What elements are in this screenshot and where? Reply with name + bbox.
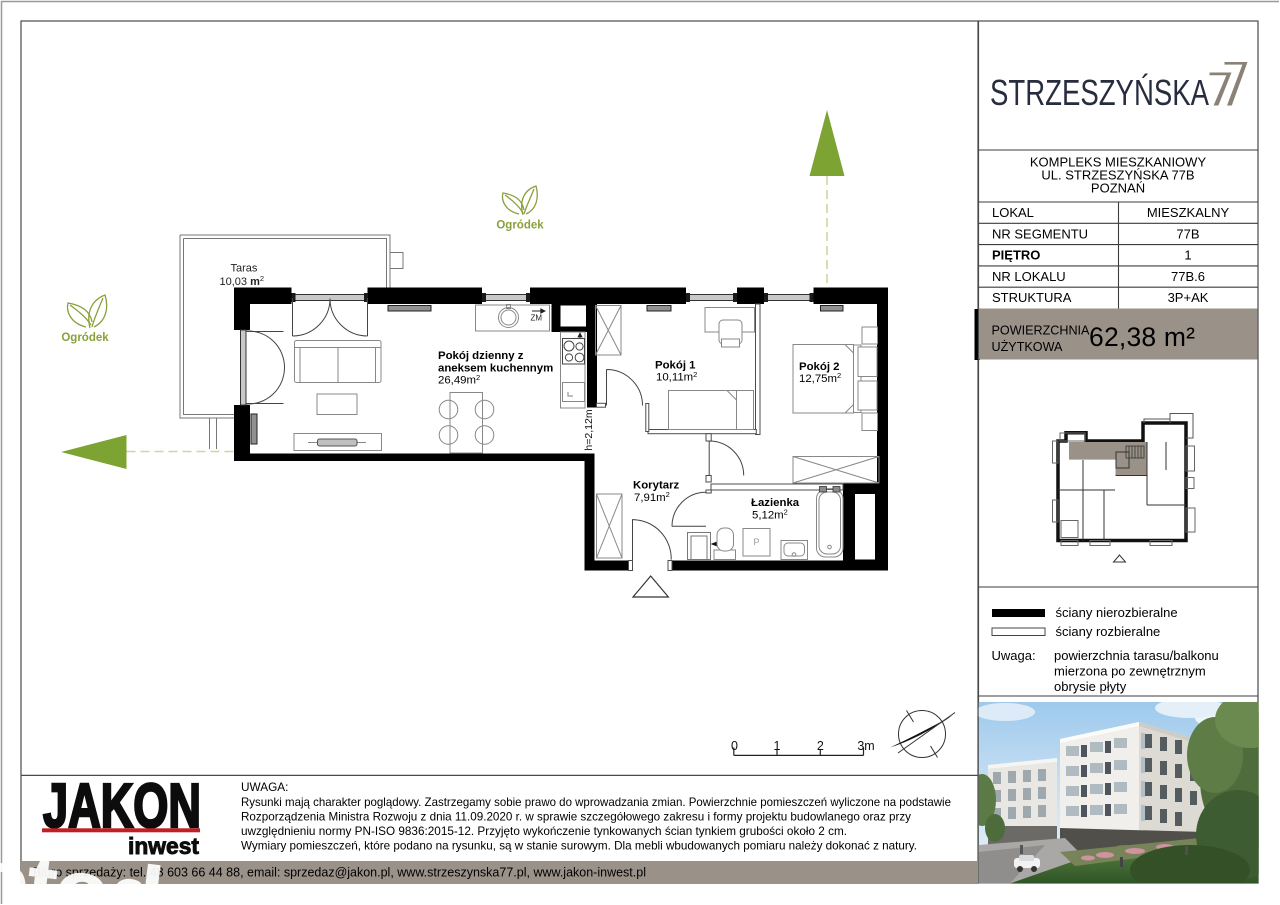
svg-text:P: P — [753, 537, 759, 547]
svg-text:3P+AK: 3P+AK — [1168, 290, 1209, 305]
svg-text:Wymiary pomieszczeń, które pod: Wymiary pomieszczeń, które podano na rys… — [241, 839, 917, 853]
svg-text:0: 0 — [731, 739, 738, 753]
svg-text:PIĘTRO: PIĘTRO — [992, 248, 1040, 263]
svg-text:powierzchnia tarasu/balkonu: powierzchnia tarasu/balkonu — [1054, 648, 1219, 663]
svg-text:Rysunki mają charakter poglądo: Rysunki mają charakter poglądowy. Zastrz… — [241, 795, 951, 809]
svg-text:STRUKTURA: STRUKTURA — [992, 290, 1072, 305]
svg-text:2: 2 — [817, 739, 824, 753]
svg-text:ściany rozbieralne: ściany rozbieralne — [1056, 624, 1161, 639]
svg-text:ZM: ZM — [531, 314, 543, 323]
svg-text:77B.6: 77B.6 — [1171, 269, 1205, 284]
svg-text:1: 1 — [1184, 248, 1191, 263]
svg-text:ściany nierozbieralne: ściany nierozbieralne — [1056, 605, 1178, 620]
svg-text:26,49m2: 26,49m2 — [438, 373, 480, 387]
svg-text:1: 1 — [774, 739, 781, 753]
svg-text:aneksem kuchennym: aneksem kuchennym — [438, 362, 553, 374]
svg-text:UŻYTKOWA: UŻYTKOWA — [992, 340, 1063, 354]
svg-text:NR LOKALU: NR LOKALU — [992, 269, 1066, 284]
svg-text:Ogródek: Ogródek — [496, 220, 544, 232]
svg-text:77B: 77B — [1176, 226, 1199, 241]
svg-text:12,75m2: 12,75m2 — [799, 371, 841, 385]
svg-text:7,91m2: 7,91m2 — [634, 490, 670, 504]
svg-text:3m: 3m — [857, 739, 874, 753]
svg-text:STRZESZYŃSKA: STRZESZYŃSKA — [990, 72, 1209, 113]
svg-text:Uwaga:: Uwaga: — [992, 648, 1036, 663]
svg-text:uwzględnieniu normy PN-ISO 983: uwzględnieniu normy PN-ISO 9836:2015-12.… — [241, 824, 847, 838]
svg-text:h=2,12m: h=2,12m — [583, 409, 595, 450]
svg-text:POWIERZCHNIA: POWIERZCHNIA — [992, 324, 1091, 338]
svg-text:10,11m2: 10,11m2 — [656, 370, 697, 384]
svg-text:Rozporządzenia Ministra Rozwoj: Rozporządzenia Ministra Rozwoju z dnia 1… — [241, 810, 911, 824]
svg-text:mierzona po zewnętrznym: mierzona po zewnętrznym — [1054, 664, 1206, 679]
svg-text:5,12m2: 5,12m2 — [752, 508, 788, 522]
svg-text:Ogródek: Ogródek — [61, 332, 109, 344]
svg-text:POZNAŃ: POZNAŃ — [1091, 181, 1145, 196]
svg-text:62,38 m²: 62,38 m² — [1089, 322, 1195, 352]
svg-text:Pokój 1: Pokój 1 — [655, 359, 696, 371]
svg-text:Pokój 2: Pokój 2 — [799, 361, 840, 373]
svg-text:MIESZKALNY: MIESZKALNY — [1147, 205, 1230, 220]
svg-text:UWAGA:: UWAGA: — [241, 780, 288, 794]
svg-text:NR SEGMENTU: NR SEGMENTU — [992, 226, 1088, 241]
svg-text:Łazienka: Łazienka — [751, 497, 800, 509]
svg-text:Taras: Taras — [231, 263, 258, 275]
svg-text:LOKAL: LOKAL — [992, 205, 1034, 220]
svg-text:obrysie płyty: obrysie płyty — [1054, 679, 1127, 694]
svg-text:10,03 m2: 10,03 m2 — [220, 274, 265, 288]
svg-text:Pokój dzienny z: Pokój dzienny z — [438, 350, 524, 362]
svg-text:Korytarz: Korytarz — [633, 480, 680, 492]
